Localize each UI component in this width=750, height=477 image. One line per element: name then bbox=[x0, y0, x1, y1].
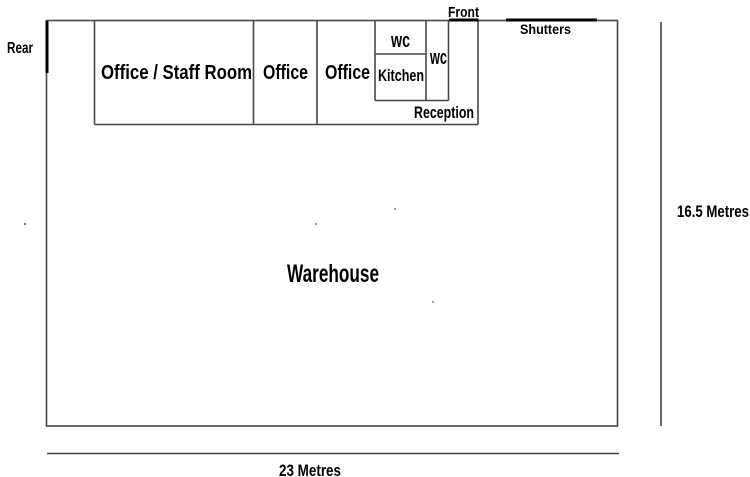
svg-text:Warehouse: Warehouse bbox=[287, 260, 379, 288]
svg-text:Shutters: Shutters bbox=[520, 21, 571, 37]
svg-text:23 Metres: 23 Metres bbox=[279, 461, 341, 477]
svg-text:Reception: Reception bbox=[414, 103, 474, 122]
svg-text:Rear: Rear bbox=[7, 40, 33, 57]
svg-text:Kitchen: Kitchen bbox=[378, 66, 424, 85]
svg-text:Office: Office bbox=[263, 62, 308, 84]
svg-text:Office: Office bbox=[325, 62, 370, 84]
svg-text:wc: wc bbox=[429, 47, 447, 69]
svg-text:wc: wc bbox=[390, 30, 410, 52]
svg-text:Front: Front bbox=[448, 4, 479, 21]
svg-text:Office / Staff Room: Office / Staff Room bbox=[101, 62, 252, 84]
svg-text:16.5 Metres: 16.5 Metres bbox=[677, 202, 749, 221]
